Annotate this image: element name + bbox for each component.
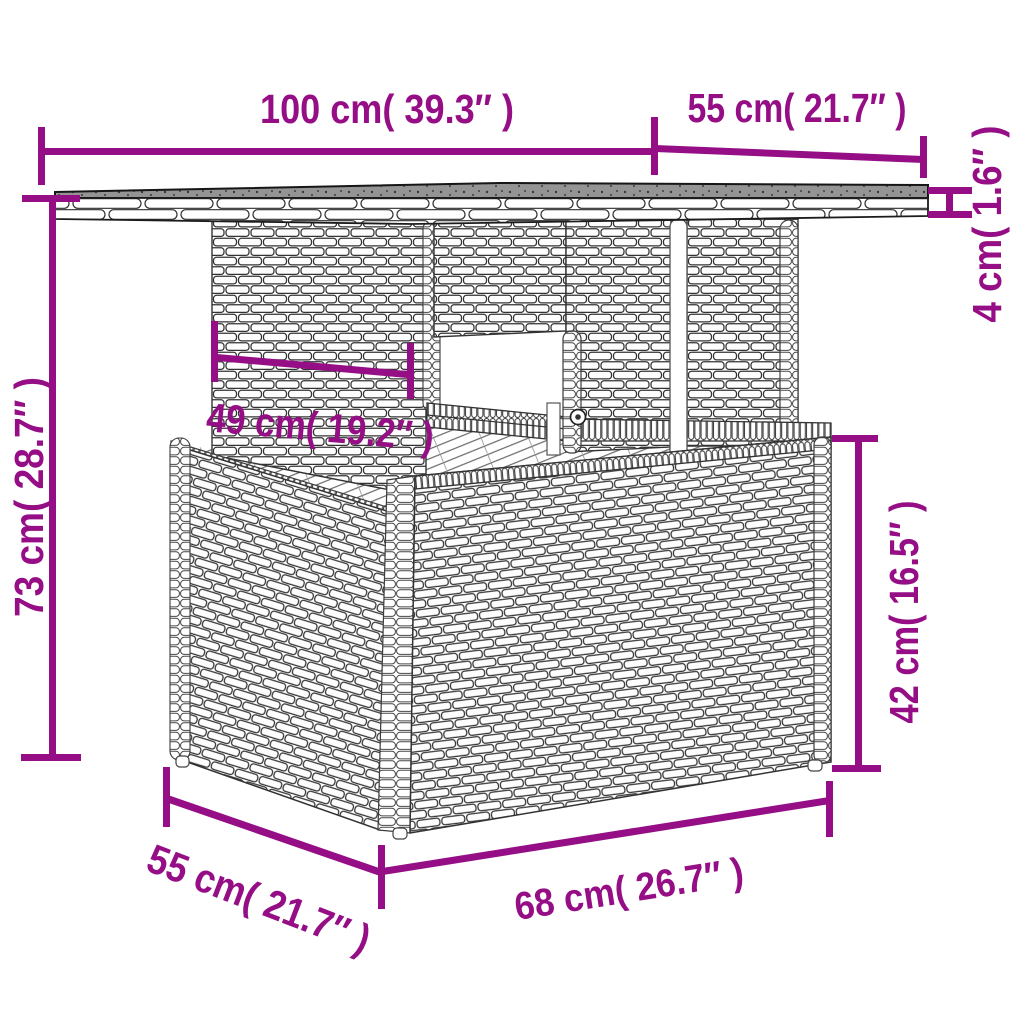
svg-text:100 cm( 39.3″ ): 100 cm( 39.3″ ) xyxy=(260,86,514,132)
svg-text:73 cm( 28.7″ ): 73 cm( 28.7″ ) xyxy=(6,377,52,617)
svg-text:4 cm( 1.6″ ): 4 cm( 1.6″ ) xyxy=(964,126,1010,323)
svg-text:42 cm( 16.5″ ): 42 cm( 16.5″ ) xyxy=(881,501,927,724)
svg-text:55 cm( 21.7″ ): 55 cm( 21.7″ ) xyxy=(688,85,907,131)
